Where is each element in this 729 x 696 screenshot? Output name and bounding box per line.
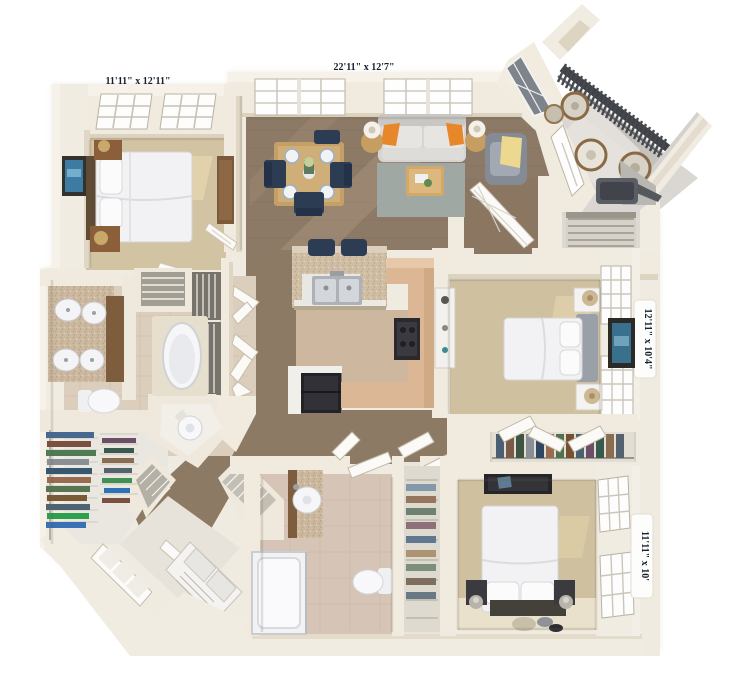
svg-text:11'11" x 10': 11'11" x 10' <box>639 531 650 581</box>
svg-text:11'11" x 12'11": 11'11" x 12'11" <box>105 76 170 87</box>
svg-text:22'11" x 12'7": 22'11" x 12'7" <box>333 62 394 73</box>
svg-text:12'11" x 10'4": 12'11" x 10'4" <box>642 308 653 369</box>
